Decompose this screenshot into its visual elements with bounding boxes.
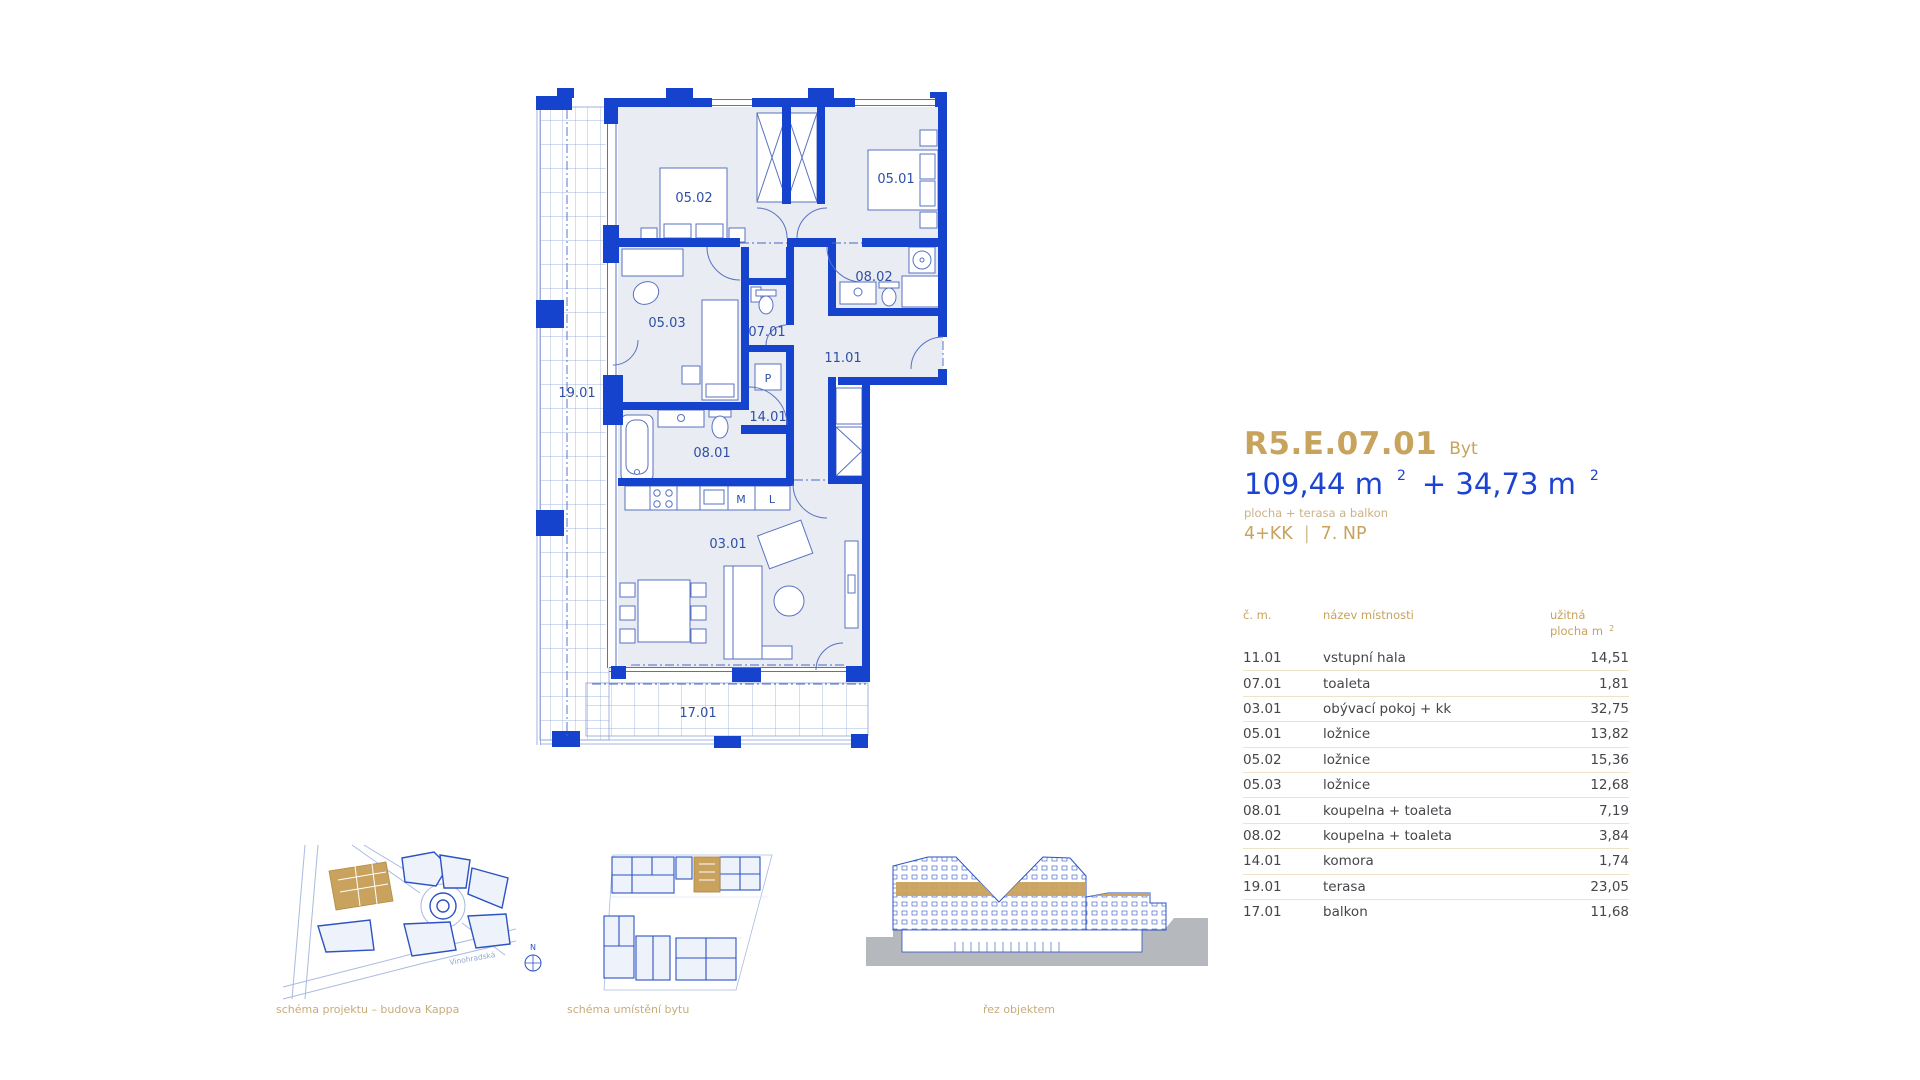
compass-north-label: N (530, 943, 536, 952)
room-label-m: M (736, 493, 746, 506)
col-header-name: název místnosti (1323, 608, 1537, 638)
kappa-building-highlight (329, 862, 393, 910)
floor-value: 7. NP (1321, 524, 1367, 544)
main-floor-plan: 05.02 05.01 05.03 07.01 08.02 11.01 P 14… (536, 88, 947, 748)
unit-area: 109,44 m2+ 34,73 m2 (1244, 467, 1599, 501)
room-label-0503: 05.03 (648, 316, 685, 331)
divider: | (1304, 524, 1310, 544)
area-extra-value: + 34,73 m (1422, 467, 1576, 501)
room-label-0701: 07.01 (748, 325, 785, 340)
apartment-clusters (604, 857, 760, 980)
building-section-schematic (866, 850, 1208, 966)
room-label-1101: 11.01 (824, 351, 861, 366)
room-label-1401: 14.01 (749, 410, 786, 425)
site-map-schematic: Vinohradská N (283, 845, 541, 999)
table-row: 05.03 ložnice 12,68 (1243, 773, 1629, 798)
room-label-0501: 05.01 (877, 172, 914, 187)
unit-schematic-caption: schéma umístění bytu (567, 1003, 689, 1016)
room-label-0301: 03.01 (709, 537, 746, 552)
room-label-l: L (769, 493, 776, 506)
layout-value: 4+KK (1244, 524, 1293, 544)
table-row: 08.02 koupelna + toaleta 3,84 (1243, 824, 1629, 849)
table-row: 05.02 ložnice 15,36 (1243, 748, 1629, 773)
compass-icon: N (525, 943, 541, 971)
room-label-0802: 08.02 (855, 270, 892, 285)
site-schematic-caption: schéma projektu – budova Kappa (276, 1003, 459, 1016)
room-area-table: č. m. název místnosti užitná plocha m2 1… (1243, 608, 1629, 924)
layout-and-floor: 4+KK|7. NP (1244, 524, 1367, 544)
room-label-0502: 05.02 (675, 191, 712, 206)
apartment-factsheet-page: { "header": { "unit_code": "R5.E.07.01",… (0, 0, 1920, 1080)
area-main-sup: 2 (1397, 468, 1406, 484)
table-header: č. m. název místnosti užitná plocha m2 (1243, 608, 1629, 638)
col-header-number: č. m. (1243, 608, 1323, 638)
room-label-1701: 17.01 (679, 706, 716, 721)
highlighted-floor-band (896, 882, 1152, 896)
unit-location-schematic (604, 855, 772, 990)
street-label: Vinohradská (449, 950, 496, 967)
table-row: 11.01 vstupní hala 14,51 (1243, 646, 1629, 671)
floor-plan-drawing: 05.02 05.01 05.03 07.01 08.02 11.01 P 14… (0, 0, 1920, 1080)
table-row: 19.01 terasa 23,05 (1243, 875, 1629, 900)
table-row: 03.01 obývací pokoj + kk 32,75 (1243, 697, 1629, 722)
foundation (902, 930, 1142, 952)
room-label-0801: 08.01 (693, 446, 730, 461)
unit-type-label: Byt (1449, 439, 1477, 459)
table-row: 17.01 balkon 11,68 (1243, 900, 1629, 924)
area-extra-sup: 2 (1590, 468, 1599, 484)
table-row: 05.01 ložnice 13,82 (1243, 722, 1629, 747)
room-label-p: P (765, 372, 772, 385)
col-header-area: užitná plocha m2 (1537, 608, 1629, 638)
unit-code: R5.E.07.01 (1244, 426, 1437, 462)
table-row: 14.01 komora 1,74 (1243, 849, 1629, 874)
room-label-1901: 19.01 (558, 386, 595, 401)
highlighted-unit (694, 857, 720, 892)
unit-title: R5.E.07.01Byt (1244, 426, 1478, 462)
terrace-grid (537, 98, 609, 745)
table-row: 07.01 toaleta 1,81 (1243, 671, 1629, 696)
area-main-value: 109,44 m (1244, 467, 1383, 501)
area-note: plocha + terasa a balkon (1244, 506, 1388, 520)
table-row: 08.01 koupelna + toaleta 7,19 (1243, 798, 1629, 823)
section-schematic-caption: řez objektem (983, 1003, 1055, 1016)
